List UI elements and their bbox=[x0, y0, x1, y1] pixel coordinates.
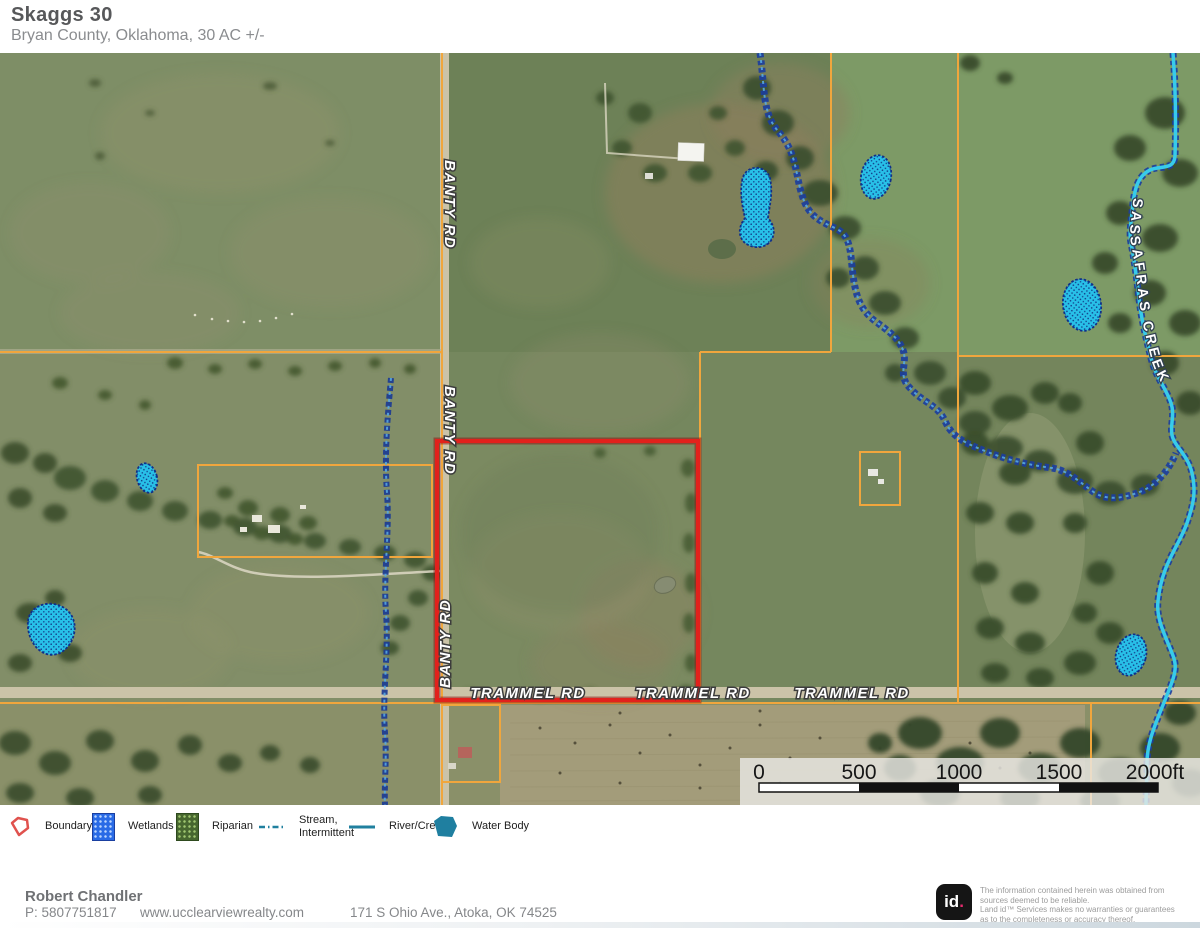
riparian-legend-icon bbox=[176, 813, 199, 841]
page-title: Skaggs 30 bbox=[11, 4, 113, 27]
disclaimer-text: The information contained herein was obt… bbox=[980, 884, 1194, 924]
banty-rd-label-2: BANTY RD bbox=[441, 386, 458, 475]
legend-item-boundary: Boundary bbox=[8, 805, 92, 848]
wetlands-legend-icon bbox=[92, 813, 115, 841]
scale-bar: 0 500 1000 1500 2000ft bbox=[740, 758, 1200, 805]
map-legend: Boundary Wetlands Riparian Stream,Interm… bbox=[0, 805, 1200, 848]
river-creek-legend-icon bbox=[348, 822, 376, 832]
legend-label: Boundary bbox=[45, 820, 92, 833]
legend-item-water-body: Water Body bbox=[432, 805, 529, 848]
agent-address: 171 S Ohio Ave., Atoka, OK 74525 bbox=[350, 905, 557, 920]
water-body-legend-icon bbox=[432, 814, 459, 840]
legend-item-riparian: Riparian bbox=[176, 805, 253, 848]
scale-tick-500: 500 bbox=[841, 761, 876, 784]
disclaimer-line: sources deemed to be reliable. bbox=[980, 896, 1194, 906]
disclaimer-line: The information contained herein was obt… bbox=[980, 886, 1194, 896]
header: Skaggs 30 Bryan County, Oklahoma, 30 AC … bbox=[0, 0, 1200, 53]
agent-name: Robert Chandler bbox=[25, 888, 143, 905]
trammel-rd-label-1: TRAMMEL RD bbox=[470, 685, 586, 702]
scale-tick-0: 0 bbox=[753, 761, 765, 784]
scale-tick-2000ft: 2000ft bbox=[1126, 761, 1185, 784]
page-subtitle: Bryan County, Oklahoma, 30 AC +/- bbox=[11, 27, 265, 45]
scale-tick-1500: 1500 bbox=[1036, 761, 1083, 784]
legend-label: Water Body bbox=[472, 820, 529, 833]
trammel-rd-label-3: TRAMMEL RD bbox=[794, 685, 910, 702]
legend-item-stream-intermittent: Stream,Intermittent bbox=[258, 805, 354, 848]
map-container: BANTY RD BANTY RD BANTY RD TRAMMEL RD TR… bbox=[0, 53, 1200, 805]
bottom-gradient-strip bbox=[0, 922, 1200, 928]
boundary-legend-icon bbox=[8, 815, 32, 839]
trammel-road bbox=[0, 687, 1200, 698]
land-id-logo: id. bbox=[936, 884, 972, 920]
map-canvas: BANTY RD BANTY RD BANTY RD TRAMMEL RD TR… bbox=[0, 53, 1200, 805]
legend-label: Stream,Intermittent bbox=[299, 814, 354, 839]
agent-phone: P: 5807751817 bbox=[25, 905, 117, 920]
scale-tick-1000: 1000 bbox=[936, 761, 983, 784]
agent-website: www.ucclearviewrealty.com bbox=[140, 905, 304, 920]
legend-label: Riparian bbox=[212, 820, 253, 833]
branding-block: id. The information contained herein was… bbox=[936, 884, 1198, 924]
banty-rd-label-3: BANTY RD bbox=[437, 599, 454, 688]
stream-intermittent-legend-icon bbox=[258, 822, 286, 832]
banty-rd-label-1: BANTY RD bbox=[441, 160, 458, 249]
trammel-rd-label-2: TRAMMEL RD bbox=[635, 685, 751, 702]
disclaimer-line: Land id™ Services makes no warranties or… bbox=[980, 905, 1194, 915]
legend-label: Wetlands bbox=[128, 820, 174, 833]
legend-item-wetlands: Wetlands bbox=[92, 805, 174, 848]
